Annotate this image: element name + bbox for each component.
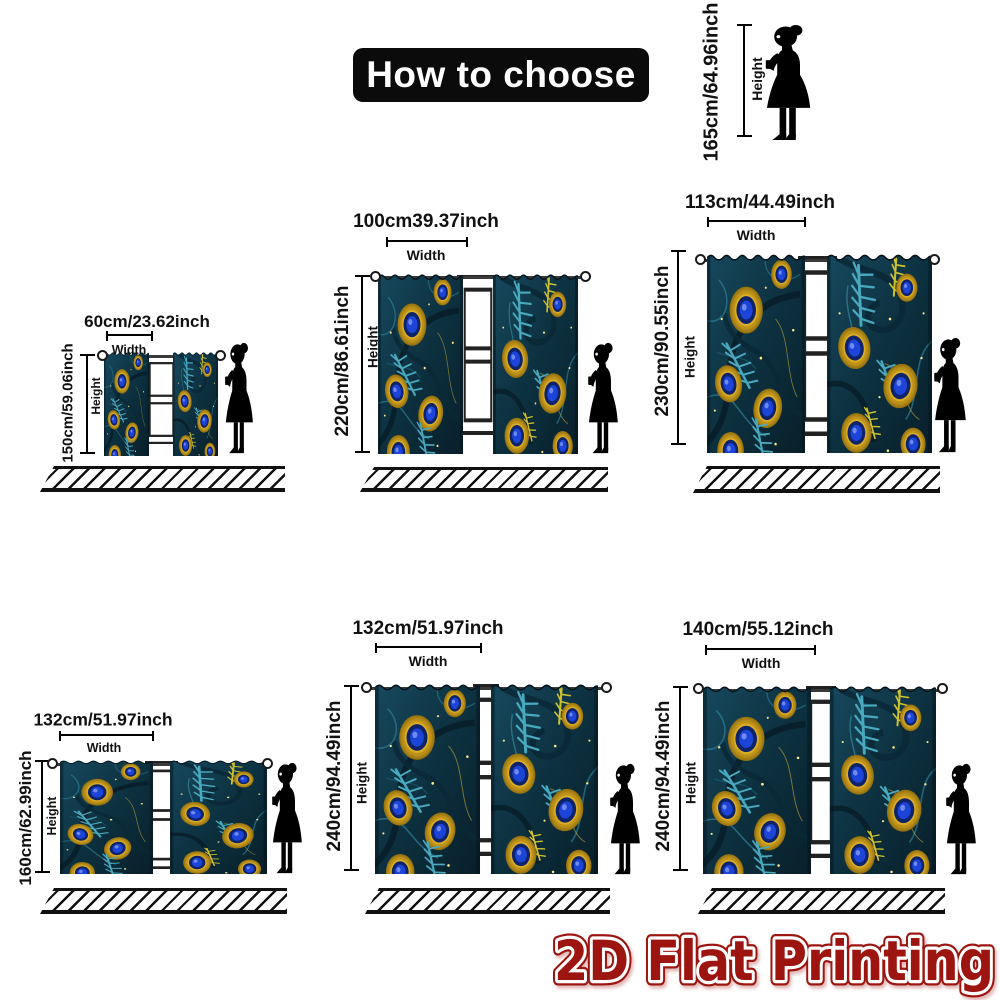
floor-hatch <box>360 467 608 492</box>
curtain-panel-left <box>703 684 811 874</box>
height-measure-line <box>86 354 88 454</box>
width-dimension-label: 132cm/51.97inch <box>352 618 503 640</box>
width-dimension-label: 132cm/51.97inch <box>33 710 172 731</box>
height-measure-line <box>361 275 363 453</box>
curtain-set <box>103 350 220 457</box>
floor-hatch <box>40 466 285 492</box>
width-dimension-label: 60cm/23.62inch <box>84 312 210 332</box>
print-style-banner: 2D Flat Printing 2D Flat Printing 2D Fla… <box>538 918 1000 998</box>
height-dimension-label: 150cm/59.06inch <box>60 343 77 462</box>
curtain-panel-left <box>104 351 149 456</box>
curtain-panel-right <box>173 351 218 456</box>
curtain-panel-right <box>493 272 578 454</box>
curtain-rod-ring-right <box>580 271 591 282</box>
woman-silhouette-icon <box>609 763 641 876</box>
woman-silhouette-icon <box>945 763 977 876</box>
width-dimension-label: 113cm/44.49inch <box>685 192 835 214</box>
width-label: Width <box>737 227 776 243</box>
height-measure-line <box>677 250 679 445</box>
height-dimension-label: 240cm/94.49inch <box>324 700 346 851</box>
curtain-panel-right <box>491 682 598 874</box>
width-measure-bracket <box>107 334 152 336</box>
curtain-rod-ring-right <box>929 254 940 265</box>
reference-size-label: 165cm/64.96inch <box>701 3 724 162</box>
curtain-panel-left <box>375 682 480 874</box>
width-dimension-label: 140cm/55.12inch <box>682 619 833 641</box>
footer-text: 2D Flat Printing <box>554 929 994 993</box>
height-dimension-label: 240cm/94.49inch <box>653 700 675 851</box>
width-label: Width <box>87 741 122 755</box>
width-dimension-label: 100cm39.37inch <box>353 211 499 233</box>
curtain-rod-ring-right <box>937 683 948 694</box>
title-banner: How to choose <box>353 48 649 102</box>
width-measure-bracket <box>60 734 153 736</box>
height-label: Height <box>89 377 103 414</box>
curtain-rod-ring-right <box>601 682 612 693</box>
curtain-set <box>700 250 935 455</box>
curtain-panel-left <box>707 252 805 453</box>
height-measure-line <box>679 686 681 871</box>
curtain-rod-ring-left <box>47 758 58 769</box>
curtain-rod-ring-right <box>215 350 226 361</box>
woman-silhouette-icon <box>271 762 303 875</box>
reference-height-measure-line <box>743 24 745 137</box>
height-measure-line <box>350 685 352 871</box>
curtain-panel-right <box>830 684 936 874</box>
curtain-panel-left <box>60 759 153 874</box>
curtain-set <box>52 758 268 876</box>
curtain-set <box>376 271 585 456</box>
floor-hatch <box>698 888 945 914</box>
curtain-rod-ring-left <box>370 271 381 282</box>
floor-hatch <box>693 466 940 493</box>
width-label: Width <box>409 653 448 669</box>
curtain-rod-ring-right <box>262 758 273 769</box>
width-measure-bracket <box>708 220 805 222</box>
width-measure-bracket <box>706 648 815 650</box>
curtain-panel-right <box>827 252 932 453</box>
size-guide-infographic: How to choose 165cm/64.96inch Height 60c… <box>0 0 1000 1000</box>
reference-height-label: Height <box>749 57 765 101</box>
width-measure-bracket <box>376 646 481 648</box>
woman-silhouette-icon <box>933 337 967 454</box>
curtain-set <box>695 683 946 876</box>
width-measure-bracket <box>387 240 467 242</box>
height-dimension-label: 230cm/90.55inch <box>652 265 674 416</box>
height-dimension-label: 160cm/62.99inch <box>16 750 36 885</box>
curtain-rod-ring-left <box>695 254 706 265</box>
woman-silhouette-icon <box>764 24 812 142</box>
woman-silhouette-icon <box>224 342 254 455</box>
curtain-rod-ring-left <box>693 683 704 694</box>
height-dimension-label: 220cm/86.61inch <box>332 285 354 436</box>
width-label: Width <box>407 247 446 263</box>
height-label: Height <box>683 336 698 378</box>
width-label: Width <box>742 655 781 671</box>
woman-silhouette-icon <box>587 342 619 455</box>
curtain-set <box>363 681 610 876</box>
height-measure-line <box>41 760 43 873</box>
page-title: How to choose <box>366 54 636 96</box>
curtain-rod-ring-left <box>97 350 108 361</box>
floor-hatch <box>365 888 610 914</box>
curtain-panel-left <box>378 272 463 454</box>
curtain-rod-ring-left <box>361 682 372 693</box>
floor-hatch <box>40 888 287 914</box>
curtain-panel-right <box>170 759 267 874</box>
